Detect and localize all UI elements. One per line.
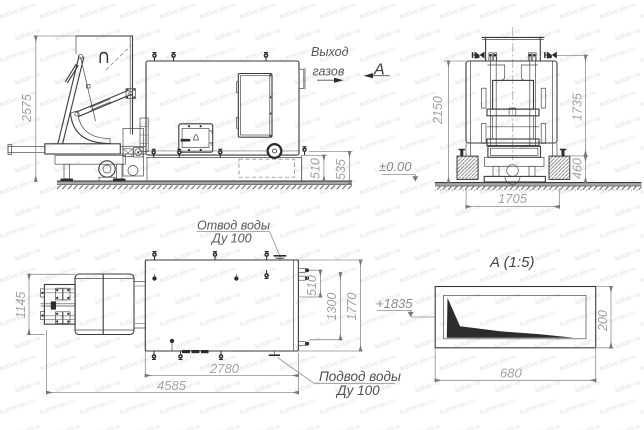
svg-text:460: 460 bbox=[571, 158, 585, 179]
svg-text:680: 680 bbox=[500, 366, 522, 381]
svg-text:1735: 1735 bbox=[571, 93, 585, 121]
svg-text:Отвод воды: Отвод воды bbox=[197, 219, 270, 233]
svg-text:510: 510 bbox=[305, 275, 319, 296]
svg-text:200: 200 bbox=[596, 310, 610, 332]
svg-text:2150: 2150 bbox=[431, 96, 445, 125]
svg-text:газов: газов bbox=[313, 65, 345, 79]
svg-text:510: 510 bbox=[309, 158, 323, 179]
svg-text:Выход: Выход bbox=[311, 45, 349, 59]
svg-text:1145: 1145 bbox=[14, 292, 28, 319]
svg-text:±0.00: ±0.00 bbox=[379, 159, 412, 174]
svg-text:535: 535 bbox=[334, 159, 348, 180]
svg-text:Подвод воды: Подвод воды bbox=[319, 369, 401, 384]
svg-text:4585: 4585 bbox=[157, 378, 187, 393]
svg-text:2780: 2780 bbox=[209, 361, 240, 376]
svg-text:+1835: +1835 bbox=[376, 296, 413, 311]
svg-text:1770: 1770 bbox=[345, 293, 359, 321]
svg-text:1300: 1300 bbox=[325, 293, 339, 321]
svg-text:2575: 2575 bbox=[20, 94, 34, 123]
svg-text:A (1:5): A (1:5) bbox=[489, 254, 534, 271]
svg-text:Ду 100: Ду 100 bbox=[210, 232, 252, 246]
svg-text:1705: 1705 bbox=[498, 191, 528, 206]
svg-text:Ду 100: Ду 100 bbox=[335, 383, 380, 398]
